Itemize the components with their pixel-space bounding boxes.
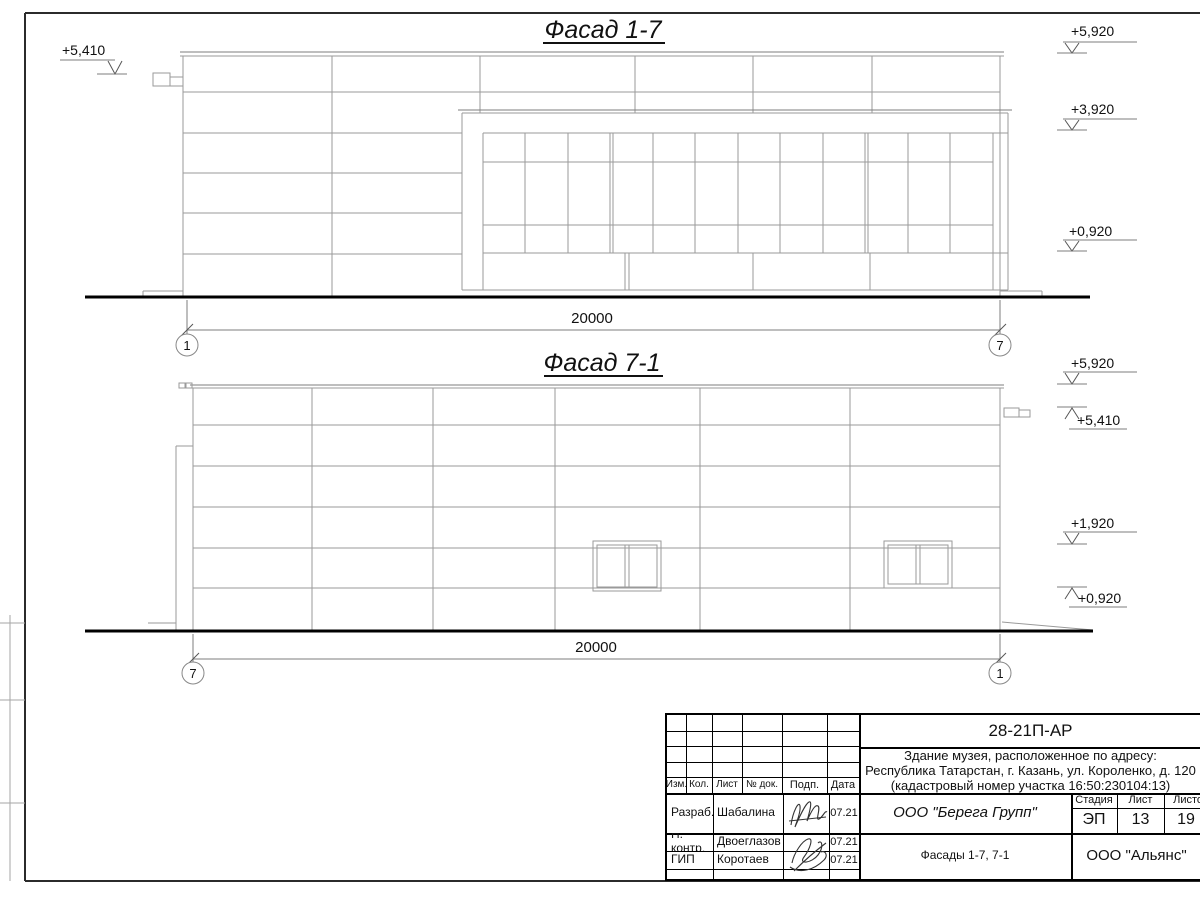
signer-date-2: 07.21 [829,851,859,869]
stage-label: Стадия [1071,793,1117,808]
dimension-facade-17 [176,300,1011,356]
signer-role-2: ГИП [667,851,713,869]
elevation-marks-17 [60,42,1137,251]
elevation-marks-71 [1057,372,1137,607]
signer-date-1: 07.21 [829,833,859,851]
signature-scribble-2 [784,831,830,877]
col-header-ndok: № док. [742,777,782,793]
project-line-1: Здание музея, расположенное по адресу: [859,748,1200,763]
col-header-list: Лист [712,777,742,793]
col-header-izm: Изм. [667,777,686,793]
signer-name-2: Коротаев [713,851,783,869]
signature-scribble-1 [785,795,829,833]
drawing-texts: Фасад 1-7 Фасад 7-1 +5,410 +5,920 +3,920… [62,16,1121,681]
col-header-kol: Кол. [686,777,712,793]
sheets-total: 19 [1164,808,1200,833]
elevation-label: +1,920 [1071,515,1114,531]
facade-71-title: Фасад 7-1 [543,349,660,377]
stage-value: ЭП [1071,808,1117,833]
elevation-label: +5,410 [62,42,105,58]
client-org: ООО "Альянс" [1071,833,1200,879]
axis-bubble-label: 1 [996,666,1003,681]
signer-role-1: Н. контр. [667,833,713,851]
col-header-podp: Подп. [782,777,827,793]
axis-bubble-label: 1 [183,338,190,353]
facade-17-title: Фасад 1-7 [544,16,662,44]
signer-name-0: Шабалина [713,793,783,833]
col-header-data: Дата [827,777,859,793]
design-company: ООО "Берега Групп" [859,793,1071,833]
signer-date-0: 07.21 [829,793,859,833]
left-margin-table [0,615,25,881]
elevation-label: +5,920 [1071,23,1114,39]
drawing-sheet: Фасад 1-7 Фасад 7-1 +5,410 +5,920 +3,920… [0,0,1200,900]
axis-bubble-label: 7 [996,338,1003,353]
facade-71-ramp [1002,622,1093,630]
facade-17-linework [143,52,1042,296]
sheet-number: 13 [1117,808,1164,833]
axis-bubble-label: 7 [189,666,196,681]
elevation-label: +0,920 [1069,223,1112,239]
dimension-value: 20000 [575,639,617,656]
elevation-label: +0,920 [1078,590,1121,606]
facade-71-linework [148,383,1030,630]
elevation-label: +5,920 [1071,355,1114,371]
project-name: Здание музея, расположенное по адресу: Р… [859,747,1200,793]
sheet-title: Фасады 1-7, 7-1 [859,833,1071,879]
sheet-label: Лист [1117,793,1164,808]
sheets-label: Листов [1164,793,1200,808]
signer-name-1: Двоеглазов [713,833,783,851]
signer-role-0: Разраб. [667,793,713,833]
title-block: Изм. Кол. Лист № док. Подп. Дата 28-21П-… [665,713,1200,881]
project-line-3: (кадастровый номер участка 16:50:230104:… [859,778,1200,793]
dimension-value: 20000 [571,310,613,327]
elevation-label: +5,410 [1077,412,1120,428]
ground-lines [85,297,1093,631]
project-line-2: Республика Татарстан, г. Казань, ул. Кор… [859,763,1200,778]
elevation-label: +3,920 [1071,101,1114,117]
doc-number: 28-21П-АР [859,715,1200,747]
